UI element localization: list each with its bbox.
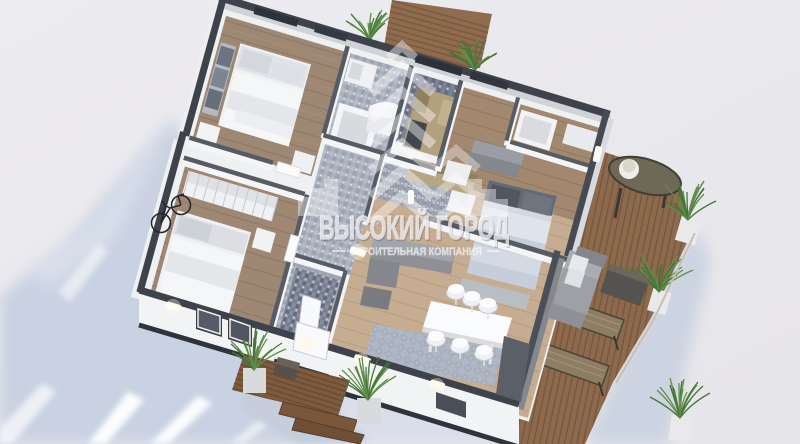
svg-text:ВЫСОКИЙ ГОРОД: ВЫСОКИЙ ГОРОД: [319, 208, 509, 246]
svg-text:СТРОИТЕЛЬНАЯ КОМПАНИЯ: СТРОИТЕЛЬНАЯ КОМПАНИЯ: [350, 246, 482, 258]
